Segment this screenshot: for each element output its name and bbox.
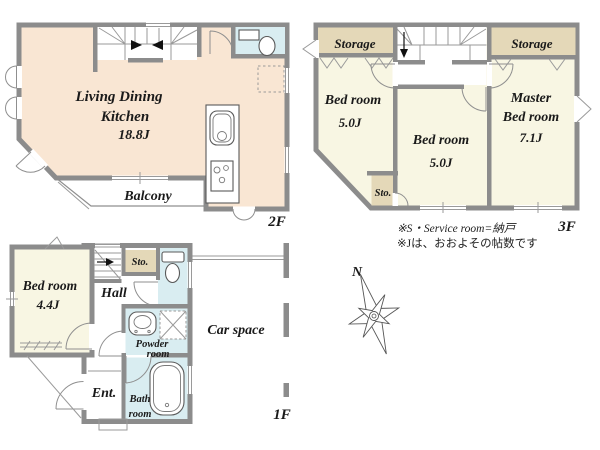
porch-line [27,356,81,418]
bath-label-line2: room [129,409,152,420]
sto-1f-label: Sto. [132,257,149,268]
floor-3f-plan: Storage Storage Bed room 5.0J Bed room 5… [303,25,591,235]
floor-3f-label: 3F [557,219,576,235]
casement-window-icon [6,66,17,88]
toilet-bowl-icon [259,37,275,56]
toilet-bowl-icon [166,264,180,283]
floor-1f-plan: Bed room 4.4J Hall Sto. Powder room Bath… [6,237,291,430]
floor-2f-label: 2F [267,214,286,230]
compass-north-label: N [351,265,363,280]
master-label-line2: Bed room [502,110,560,125]
balcony-label: Balcony [123,189,172,204]
floor-1f-label: 1F [273,407,291,423]
bedroom-1f-label: Bed room [22,278,77,293]
note-line1: ※S・Service room=納戸 [397,222,517,235]
floor-plan-page: Living Dining Kitchen 18.8J Balcony 2F [0,0,600,450]
note-line2: ※Jは、おおよその帖数です [397,236,538,250]
hall-3f [396,62,487,85]
bedroom-mid-size: 5.0J [430,155,453,170]
master-size: 7.1J [520,130,543,145]
sto-3f-label: Sto. [375,188,392,199]
casement-window-icon [6,97,17,119]
compass-rose [333,265,414,363]
bedroom-1f-size: 4.4J [36,297,60,312]
toilet-tank [239,30,259,40]
ldk-size-label: 18.8J [118,128,151,143]
floor-plan-drawing: Living Dining Kitchen 18.8J Balcony 2F [0,0,600,450]
bedroom-left-label: Bed room [324,93,382,108]
kitchen-counter [206,105,239,203]
master-label-line1: Master [510,91,552,106]
bedroom-left-size: 5.0J [339,115,362,130]
storage-left-label: Storage [334,36,375,51]
toilet-tank [162,252,184,262]
ldk-label-line2: Kitchen [100,109,149,125]
floor-2f-plan: Living Dining Kitchen 18.8J Balcony 2F [6,22,290,230]
car-space-area [193,243,290,397]
powder-label-line2: room [147,349,170,360]
kitchen-sink-icon [210,111,234,145]
bedroom-mid-label: Bed room [412,133,470,148]
stove-icon [211,161,233,191]
hall-label: Hall [100,286,127,301]
car-space-label: Car space [207,323,264,338]
ldk-label-line1: Living Dining [74,89,163,105]
storage-right-label: Storage [511,36,552,51]
balcony-rail-line [58,182,89,209]
entrance-label: Ent. [91,386,117,401]
compass-star-icon [348,287,400,345]
footnotes: ※S・Service room=納戸 ※Jは、おおよその帖数です [397,222,538,250]
bath-label-line1: Bath [128,394,150,405]
boundary-line [193,256,289,260]
stairs-3f [393,25,488,85]
